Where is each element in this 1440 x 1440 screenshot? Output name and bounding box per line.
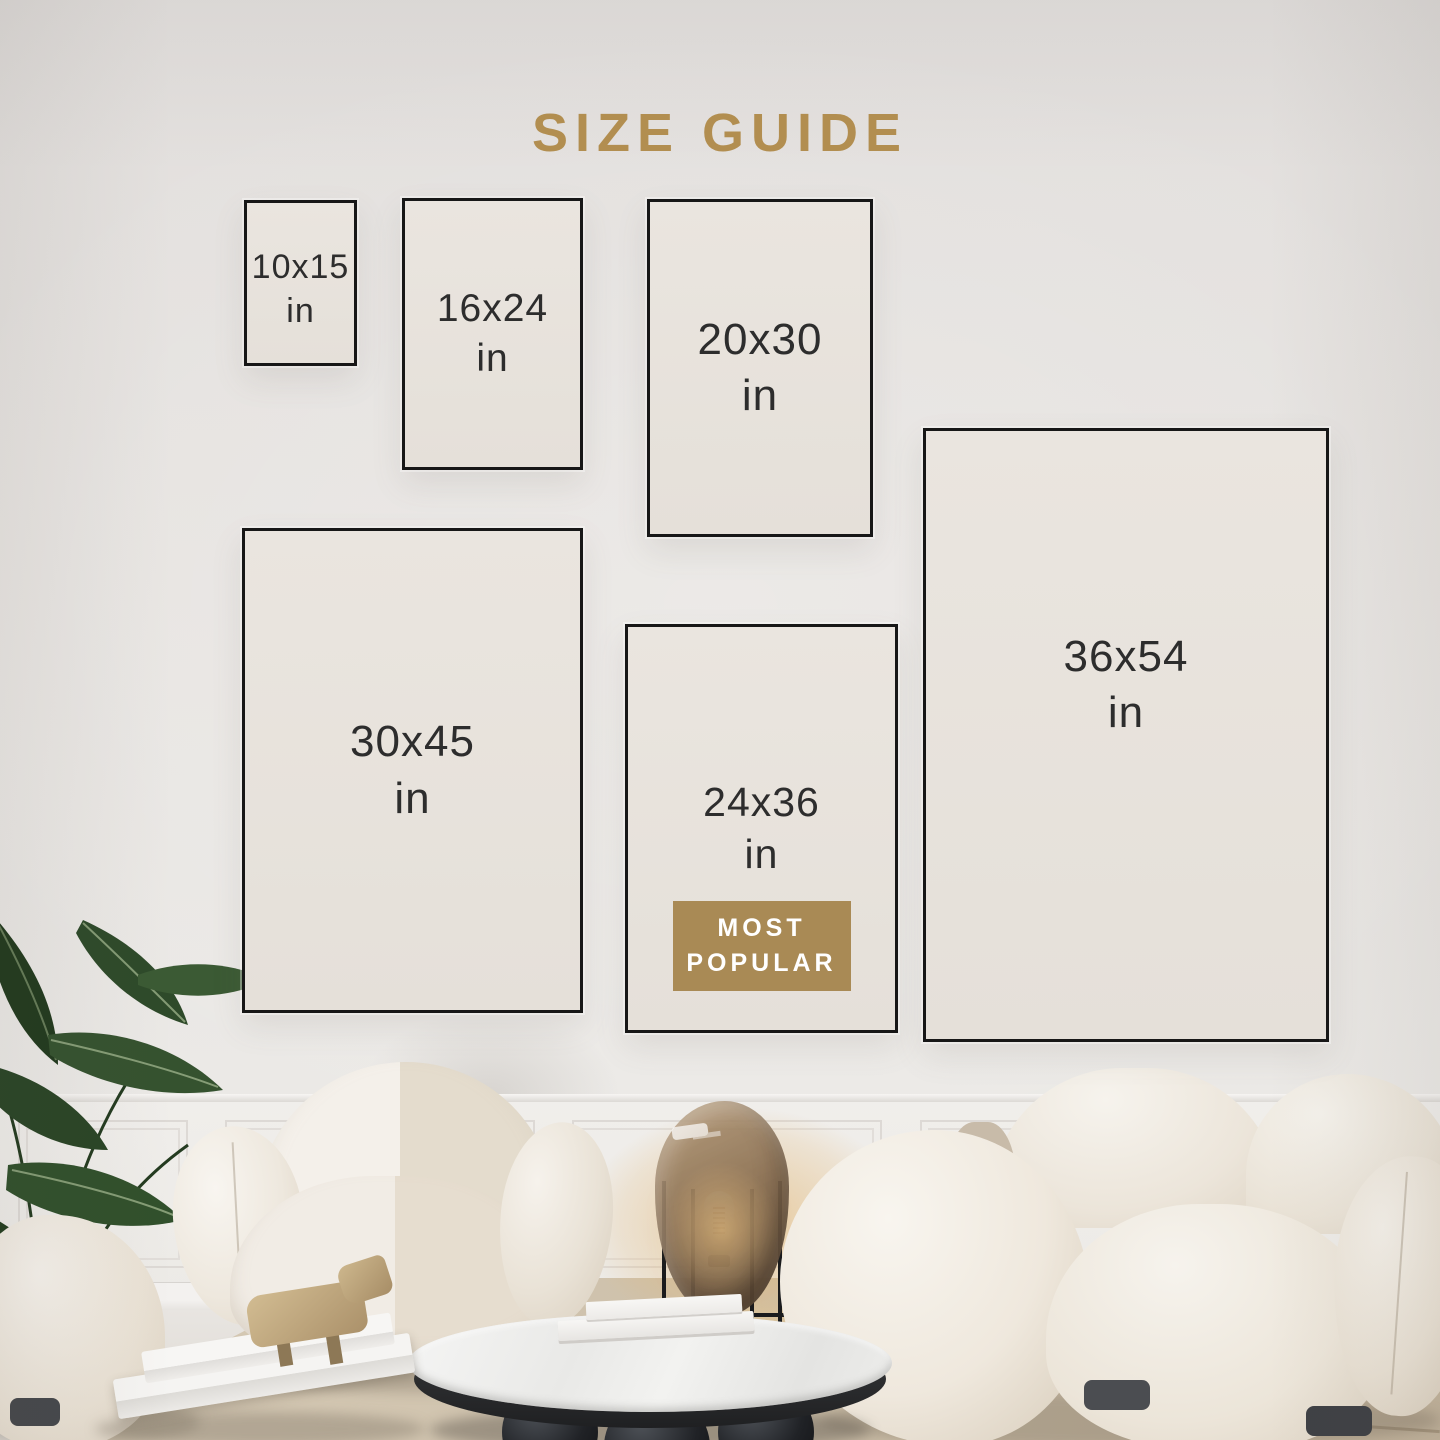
size-frame-10x15: 10x15 in [244,200,357,366]
size-label: 20x30 [698,312,823,368]
size-label: 30x45 [350,714,475,770]
sofa-foot [1306,1406,1372,1436]
book-stack-with-figurine [102,1252,442,1440]
most-popular-badge: MOST POPULAR [673,901,851,991]
unit-label: in [476,334,508,384]
unit-label: in [745,828,779,880]
size-frame-24x36: 24x36 in MOST POPULAR [625,624,898,1033]
size-guide-poster: SIZE GUIDE 10x15 in 16x24 in 20x30 in 36… [0,0,1440,1440]
page-title: SIZE GUIDE [0,102,1440,164]
badge-line-2: POPULAR [673,946,851,981]
size-frame-30x45: 30x45 in [242,528,583,1013]
coffee-table [408,1290,892,1440]
unit-label: in [286,290,314,334]
badge-line-1: MOST [673,911,851,946]
size-frame-16x24: 16x24 in [402,198,583,470]
unit-label: in [394,771,430,827]
size-label: 36x54 [1064,629,1189,685]
size-label: 10x15 [252,246,350,290]
size-label: 24x36 [703,776,820,828]
ottoman-foot [10,1398,60,1426]
size-label: 16x24 [437,284,548,334]
size-frame-20x30: 20x30 in [647,199,873,537]
size-frame-36x54: 36x54 in [923,428,1329,1042]
unit-label: in [1108,685,1144,741]
sofa-foot [1084,1380,1150,1410]
unit-label: in [742,368,778,424]
